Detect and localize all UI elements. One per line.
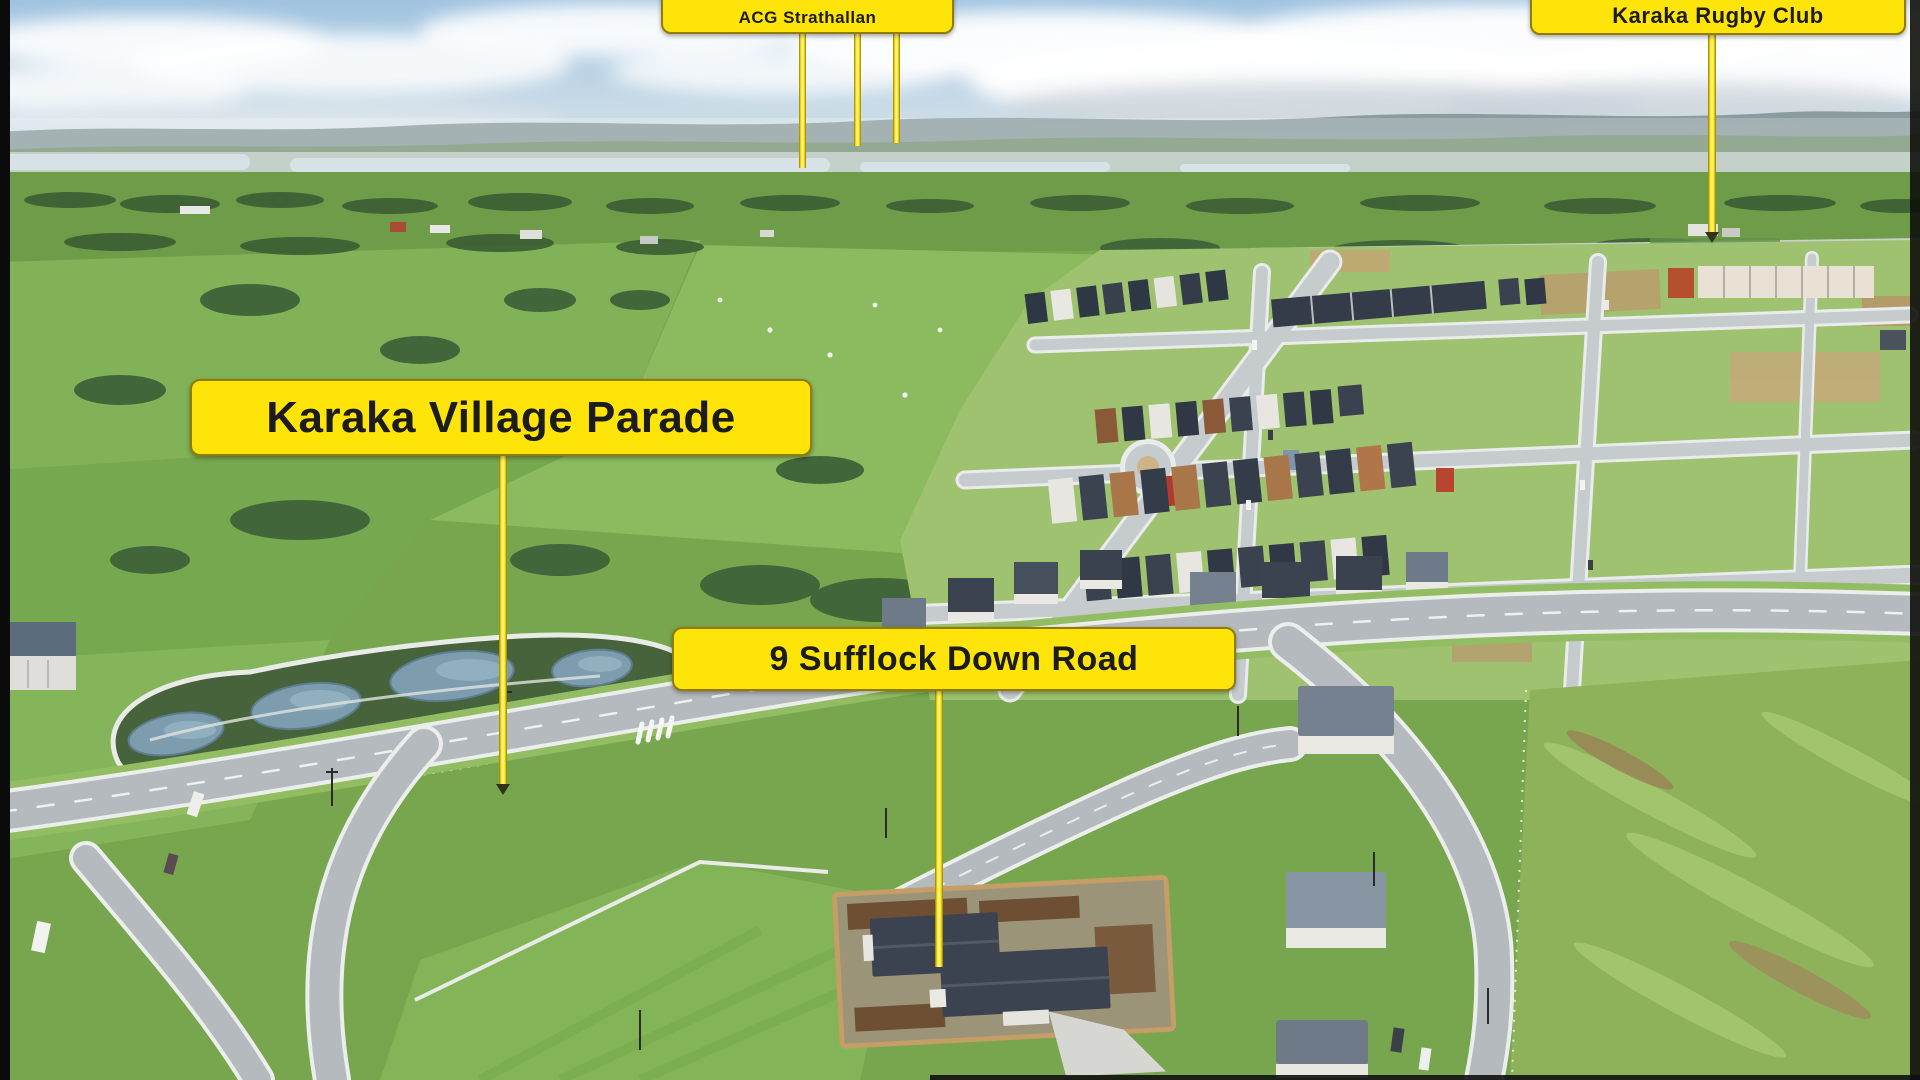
pointer-line-rugby-club [1708,26,1716,232]
pointer-tip-street [496,784,510,795]
pointer-line-street [499,452,507,784]
aerial-photo-view: ACG Strathallan Karaka Rugby Club Karaka… [0,0,1920,1080]
aerial-photo-background [0,0,1920,1080]
pointer-tip-rugby-club [1705,232,1719,243]
pointer-line-school-1 [799,26,806,168]
label-karaka-rugby-club: Karaka Rugby Club [1530,0,1906,35]
label-karaka-village-parade: Karaka Village Parade [190,379,812,456]
construction-house [0,622,76,690]
label-9-sufflock-down-road: 9 Sufflock Down Road [672,627,1236,691]
pointer-line-school-3 [893,26,900,143]
rough-field-right [1510,660,1920,1080]
pointer-line-property [935,687,943,967]
label-acg-strathallan: ACG Strathallan [661,0,954,34]
red-house [1436,468,1454,492]
pointer-line-school-2 [854,26,861,146]
